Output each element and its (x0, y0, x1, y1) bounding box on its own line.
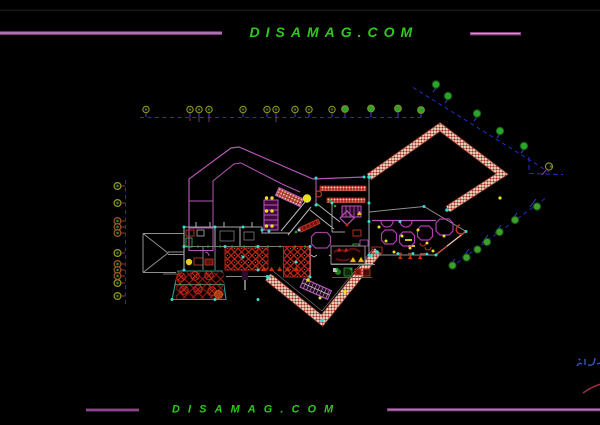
svg-text:DISAMAG.COM: DISAMAG.COM (250, 24, 419, 40)
svg-text:DISAMAG.COM: DISAMAG.COM (172, 404, 341, 416)
